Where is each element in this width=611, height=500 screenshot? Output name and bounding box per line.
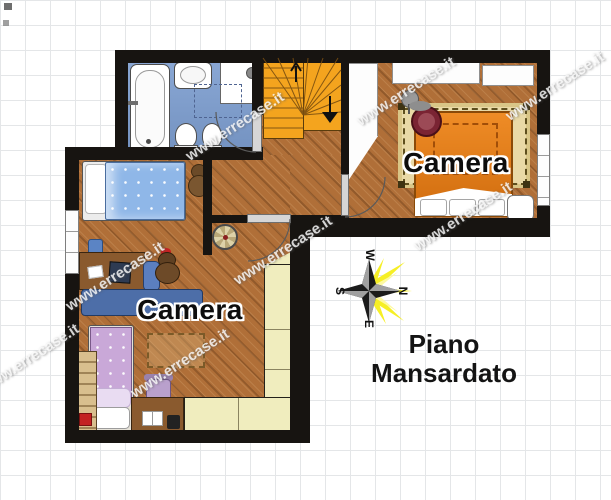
door-bedroom-right: [341, 174, 349, 216]
door-bathroom: [252, 112, 262, 152]
wall: [115, 50, 128, 160]
wardrobe-seam: [238, 398, 239, 430]
room-label-bedroom-left: Camera: [128, 294, 252, 326]
scan-artifact: [4, 3, 12, 10]
wall: [252, 58, 263, 115]
rug-corner: [523, 103, 530, 110]
computer-monitor: [108, 261, 131, 283]
rug-corner: [523, 181, 530, 188]
wardrobe-top-2: [482, 65, 534, 86]
floorplan-image: W N E S Camera Camera Piano Mansardato w…: [0, 0, 611, 500]
plan-title: Piano Mansardato: [356, 330, 532, 388]
bed-cushion: [478, 199, 505, 216]
compass-label-south: S: [333, 284, 347, 298]
wall: [290, 215, 341, 223]
pillow: [85, 164, 107, 214]
decoration-center: [223, 235, 228, 240]
teddy-bear-icon: [153, 248, 180, 282]
compass-label-east: E: [362, 317, 376, 331]
wardrobe-top-1: [392, 62, 480, 84]
wardrobe-seam: [265, 329, 290, 330]
rug-corner: [398, 181, 405, 188]
plan-title-line1: Piano: [356, 330, 532, 359]
compass-label-north: N: [396, 284, 410, 298]
bed-cushion: [420, 199, 447, 216]
plan-title-line2: Mansardato: [356, 359, 532, 388]
eaves-closet: [348, 63, 378, 137]
wall: [65, 147, 79, 443]
bed-blanket: [91, 388, 131, 408]
sink-basin: [180, 66, 206, 84]
teddy-body: [155, 262, 180, 284]
red-box: [79, 413, 92, 426]
single-bed-blue-duvet: [105, 162, 185, 220]
wall: [290, 215, 310, 443]
door-hallway-bedroom-left: [247, 214, 291, 223]
drain: [146, 139, 151, 144]
round-decoration: [212, 224, 238, 250]
paper-sheet: [87, 265, 104, 279]
faucet-icon: [127, 101, 138, 105]
skylight-dashed-outline: [194, 84, 242, 118]
wardrobe-right-column: [264, 264, 291, 402]
staircase-lower-flight: [263, 58, 304, 139]
armchair-back: [409, 101, 431, 111]
wall: [65, 430, 310, 443]
bed-cushion: [449, 199, 476, 216]
wall: [115, 50, 550, 63]
compass-label-west: W: [363, 248, 377, 262]
scan-artifact: [3, 20, 9, 26]
open-book-icon: [142, 411, 163, 426]
wall: [65, 147, 263, 160]
bathtub-basin: [135, 70, 165, 148]
armchair-cushion: [418, 113, 435, 130]
wall: [203, 158, 212, 255]
window-left: [65, 210, 79, 274]
window-right: [537, 134, 550, 206]
floor-dashed-outline: [147, 333, 205, 368]
pillow: [93, 407, 130, 429]
phone-icon: [167, 415, 180, 429]
room-label-bedroom-right: Camera: [396, 147, 516, 179]
wardrobe-bottom-run: [184, 397, 291, 431]
wardrobe-seam: [265, 369, 290, 370]
